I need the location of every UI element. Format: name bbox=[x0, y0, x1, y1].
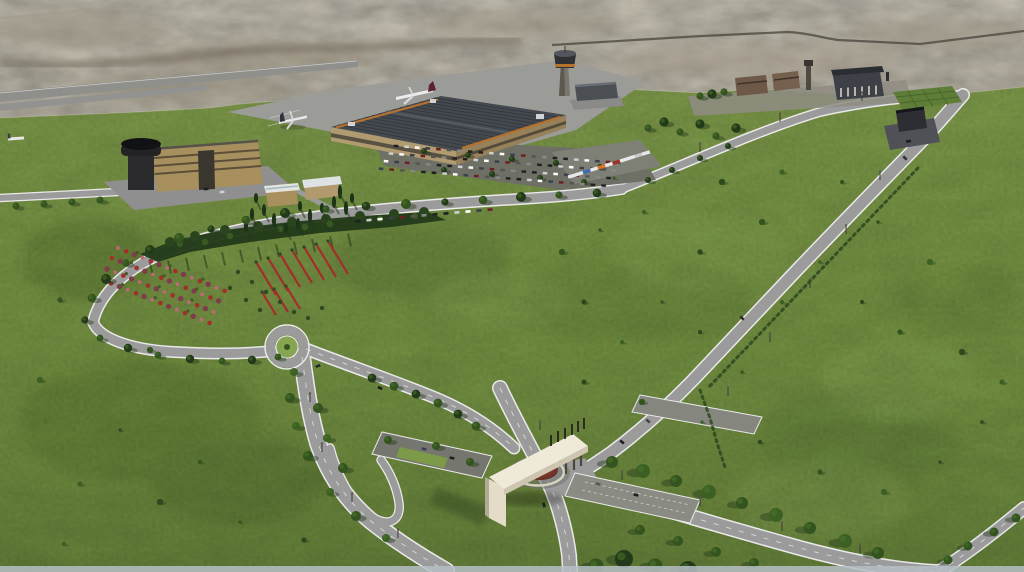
minaret-top bbox=[804, 60, 813, 66]
roundabout bbox=[265, 325, 309, 369]
minaret-tower bbox=[806, 64, 811, 90]
terminal-roof-unit bbox=[348, 122, 355, 126]
admin-cylinder-tower bbox=[128, 152, 154, 190]
bottom-strip bbox=[0, 566, 1024, 572]
render-canvas bbox=[0, 0, 1024, 572]
admin-tower-cap-top bbox=[121, 138, 161, 150]
campus-building bbox=[772, 71, 800, 91]
hangar-chimney bbox=[886, 72, 889, 81]
terminal-roof-unit bbox=[430, 99, 436, 103]
gate-wall-edge bbox=[485, 477, 489, 518]
terminal-roof-unit bbox=[536, 114, 544, 119]
admin-entrance bbox=[198, 150, 215, 190]
tower-orange-band bbox=[555, 64, 575, 67]
airport-render bbox=[0, 0, 1024, 572]
campus-building bbox=[735, 75, 768, 96]
